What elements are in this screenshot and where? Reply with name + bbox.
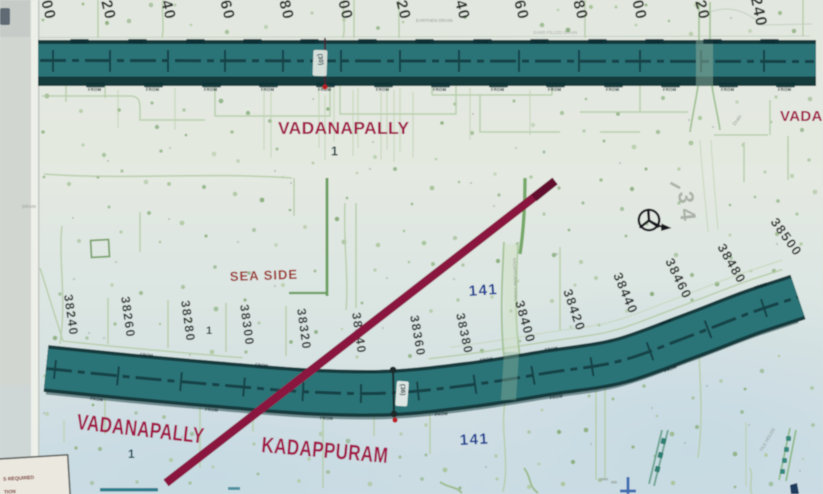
svg-text:EARTHEN DRAIN: EARTHEN DRAIN	[416, 18, 453, 23]
svg-text:FROM: FROM	[360, 39, 373, 44]
svg-text:FROM: FROM	[130, 39, 143, 44]
svg-text:DRAIN: DRAIN	[22, 204, 36, 209]
svg-text:34: 34	[673, 190, 701, 227]
svg-text:FROM: FROM	[146, 87, 159, 92]
svg-text:1: 1	[128, 447, 135, 461]
svg-text:FROM: FROM	[188, 39, 201, 44]
svg-text:VADA: VADA	[780, 108, 823, 125]
svg-text:FROM: FROM	[417, 39, 430, 44]
svg-text:FROM: FROM	[204, 87, 217, 92]
svg-text:VADANAPALLY: VADANAPALLY	[278, 118, 409, 138]
svg-text:FROM: FROM	[606, 87, 619, 92]
svg-text:FROM: FROM	[663, 87, 676, 92]
svg-text:FROM: FROM	[302, 39, 315, 44]
svg-text:FROM: FROM	[245, 39, 258, 44]
svg-text:FROM: FROM	[475, 39, 488, 44]
svg-text:FROM: FROM	[532, 39, 545, 44]
svg-text:FROM: FROM	[376, 87, 389, 92]
svg-text:FROM: FROM	[491, 87, 504, 92]
svg-text:FROM: FROM	[88, 87, 101, 92]
svg-text:1: 1	[331, 145, 338, 159]
svg-text:FROM: FROM	[705, 39, 718, 44]
svg-text:FROM: FROM	[590, 39, 603, 44]
svg-text:1: 1	[206, 325, 212, 337]
svg-text:FROM: FROM	[433, 87, 446, 92]
svg-text:FROM: FROM	[647, 39, 660, 44]
svg-text:141: 141	[468, 281, 499, 300]
svg-text:FROM: FROM	[778, 87, 791, 92]
svg-text:TION: TION	[4, 489, 17, 494]
svg-text:FROM: FROM	[548, 87, 561, 92]
svg-text:SEA SIDE: SEA SIDE	[230, 267, 299, 284]
svg-text:FROM: FROM	[320, 416, 334, 421]
svg-text:SAND FILLED DRAIN: SAND FILLED DRAIN	[533, 30, 577, 35]
svg-text:FROM: FROM	[721, 87, 734, 92]
svg-text:FROM: FROM	[261, 87, 274, 92]
svg-text:141: 141	[459, 430, 489, 449]
svg-text:FROM: FROM	[72, 39, 85, 44]
svg-text:FROM: FROM	[762, 39, 775, 44]
svg-text:(36): (36)	[399, 384, 406, 396]
